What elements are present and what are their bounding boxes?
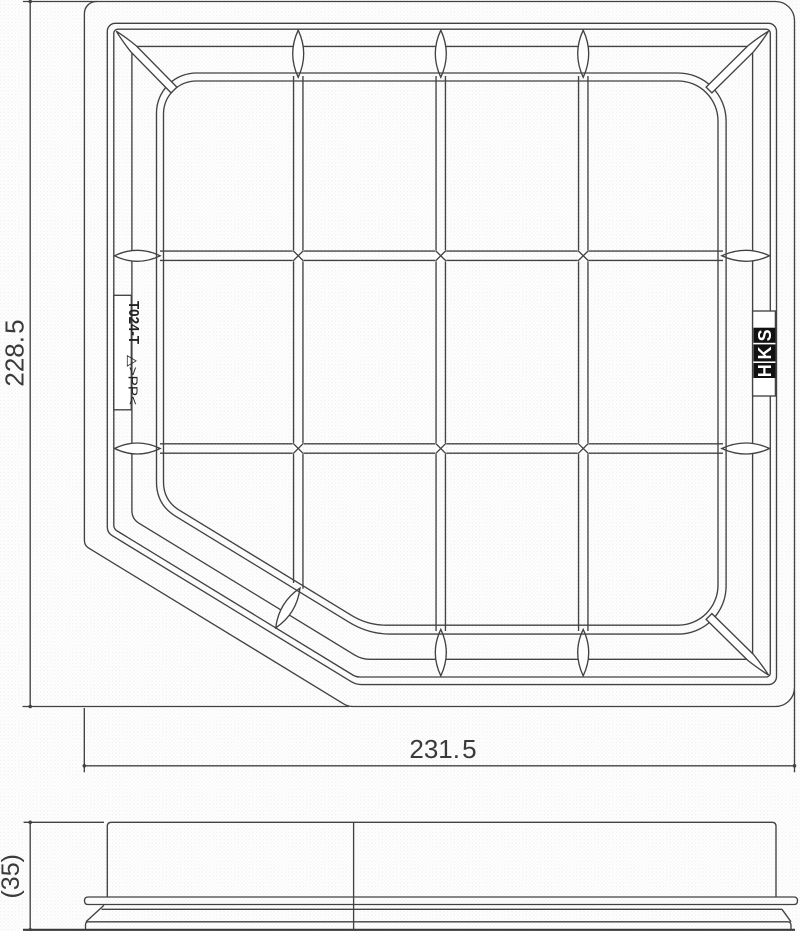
svg-text:231. 5: 231. 5 — [409, 734, 476, 764]
svg-text:△>PP<: △>PP< — [126, 355, 141, 405]
svg-text:H: H — [755, 364, 775, 377]
svg-text:S: S — [755, 329, 775, 341]
svg-text:(35): (35) — [0, 854, 25, 898]
svg-text:T024-T: T024-T — [125, 301, 142, 344]
svg-text:K: K — [755, 347, 775, 360]
svg-text:228. 5: 228. 5 — [0, 319, 30, 386]
